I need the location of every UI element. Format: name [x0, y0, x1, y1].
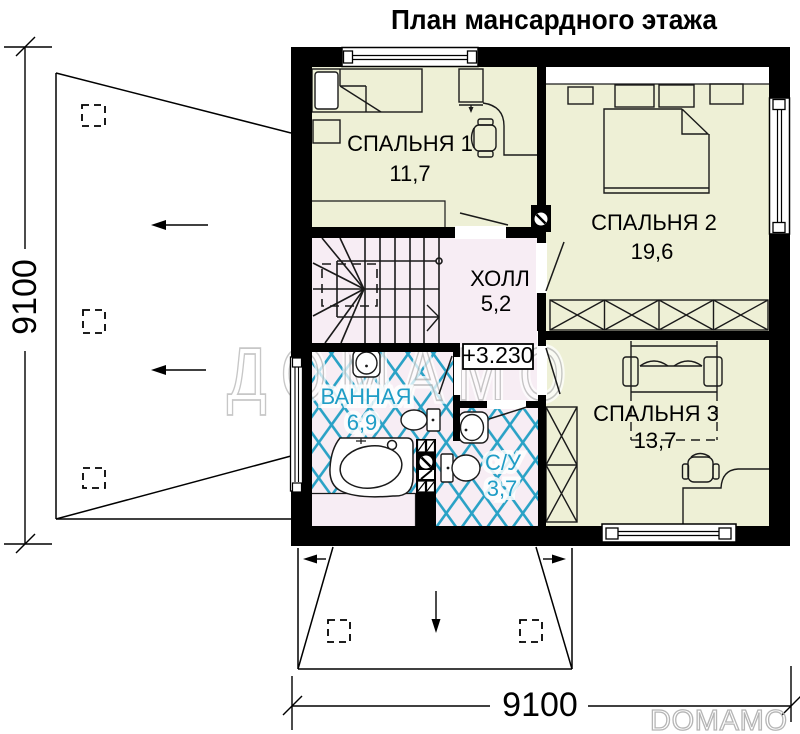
svg-text:6,9: 6,9	[347, 410, 378, 435]
svg-text:С/У: С/У	[485, 450, 522, 475]
svg-text:DOMAMO: DOMAMO	[650, 705, 787, 734]
svg-text:9100: 9100	[502, 686, 578, 724]
svg-text:СПАЛЬНЯ 3: СПАЛЬНЯ 3	[593, 401, 719, 426]
svg-text:11,7: 11,7	[389, 161, 430, 186]
svg-text:ХОЛЛ: ХОЛЛ	[470, 266, 530, 291]
svg-text:5,2: 5,2	[481, 291, 512, 316]
svg-text:ВАННАЯ: ВАННАЯ	[321, 384, 412, 409]
svg-text:19,6: 19,6	[631, 239, 674, 264]
svg-text:СПАЛЬНЯ 1: СПАЛЬНЯ 1	[347, 131, 473, 156]
svg-text:13,7: 13,7	[634, 428, 677, 453]
svg-text:План мансардного этажа: План мансардного этажа	[391, 4, 717, 35]
svg-text:9100: 9100	[6, 259, 44, 335]
svg-text:СПАЛЬНЯ 2: СПАЛЬНЯ 2	[591, 210, 717, 235]
svg-text:+3.230: +3.230	[463, 342, 534, 368]
svg-text:3,7: 3,7	[487, 476, 518, 501]
